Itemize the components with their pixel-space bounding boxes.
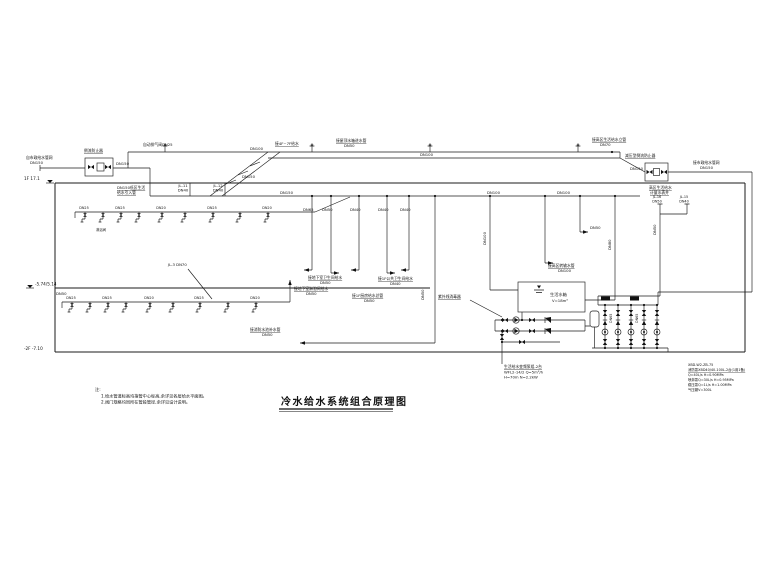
faucet-branch xyxy=(169,302,175,312)
branch-dn: DN50 xyxy=(56,291,67,296)
city-main-dn: DN150 xyxy=(700,165,714,170)
uv-sterilizer-label: 紫外线消毒器 xyxy=(438,294,461,299)
tank-volume: V=18m³ xyxy=(552,298,568,303)
level-mark-1f xyxy=(46,180,54,183)
riser-tag-dn: DN40 xyxy=(178,188,189,193)
valve-icon xyxy=(661,170,667,174)
pump-tag-badge xyxy=(601,297,610,301)
faucet-branch xyxy=(104,302,110,312)
low-zone-inlet: 自市政给水管网 DN150 倒流防止器 DN150 DN150低区生活 给水引入… xyxy=(26,148,150,196)
riser-dn: DN40 xyxy=(378,207,389,212)
backflow-preventer-label: 倒流防止器 xyxy=(84,148,103,153)
valve-icon xyxy=(529,318,535,322)
pump-column xyxy=(615,304,621,349)
branch-row-1f: DN25 DN25 DN20 DN25 DN20 淋浴间 xyxy=(75,197,350,232)
flow-arrow xyxy=(351,268,356,271)
branch-dn: DN25 xyxy=(194,296,203,300)
inlet-source-dn: DN150 xyxy=(30,160,44,165)
roof-tank-dn: DN50 xyxy=(344,143,355,148)
riser-dn: DN40 xyxy=(350,207,361,212)
central-risers: DN65 DN50 DN40 DN40 DN40 DN50 DN100 DN80… xyxy=(250,195,616,345)
riser-dn: DN65 xyxy=(303,207,314,212)
faucet-branch xyxy=(81,212,87,222)
flow-arrow xyxy=(304,268,309,271)
fire-spec-line: 消防泵XBD40/40-100L-2台(1用1备) xyxy=(688,367,746,372)
fire-spec-line: XBD-W2-ZB-75 xyxy=(688,363,713,367)
flow-arrow xyxy=(288,280,291,285)
branch-dn: DN20 xyxy=(156,206,165,210)
branch-dn: DN25 xyxy=(66,296,75,300)
high-zone-inlet: 减压型倒流防止器 DN150 接市政给水管网 DN150 高区生活给水 计量水表… xyxy=(625,153,752,305)
flow-arrow xyxy=(401,268,406,271)
valve-icon xyxy=(502,329,508,333)
faucet-branch xyxy=(135,212,141,222)
faucet-branch xyxy=(146,302,152,312)
note-line: 1.给水管道标高均指管中心标高,余详见各层给水平面图。 xyxy=(101,393,207,400)
branch-dn: DN25 xyxy=(207,206,216,210)
branch-dn: DN20 xyxy=(144,296,153,300)
branch-dn: DN20 xyxy=(250,296,259,300)
valve-icon xyxy=(88,165,94,169)
riser-dn: DN40 xyxy=(400,207,411,212)
pump-spec-line: 生活给水变频泵组-2台 xyxy=(504,364,542,369)
valve-icon xyxy=(519,340,525,344)
branch-dn: DN25 xyxy=(102,296,111,300)
level-label-b2: -2F -7.10 xyxy=(24,346,43,351)
pump-column xyxy=(602,304,608,349)
drawing-title: 冷水给水系统组合原理图 xyxy=(279,395,408,412)
level-label-1f: 1F 17.1 xyxy=(24,176,40,181)
water-level-icon xyxy=(537,286,541,289)
top-distribution: 自动排气阀DN25 JL-11 DN40 JL-12 DN40 DN100 接4… xyxy=(128,137,645,196)
riser-tag: JL-16 xyxy=(652,195,661,199)
fire-spec-line: 气压罐V=300L xyxy=(688,387,712,392)
valve-icon xyxy=(529,329,535,333)
ramp-dn-label: DN150 xyxy=(242,174,256,179)
valve-icon xyxy=(647,170,653,174)
air-vent-icon xyxy=(576,144,581,152)
connection-dn: DN50 xyxy=(262,332,273,337)
pipe-dn-label: DN100 xyxy=(420,152,434,157)
air-vent-icon xyxy=(428,144,433,152)
pipe-dn-label: DN100 xyxy=(250,146,264,151)
water-meter-icon xyxy=(97,163,104,171)
faucet-branch xyxy=(224,302,230,312)
water-tank xyxy=(518,282,585,312)
title-text: 冷水给水系统组合原理图 xyxy=(281,395,408,408)
faucet-branch xyxy=(181,212,187,222)
valve-icon xyxy=(105,165,111,169)
riser-dn-vertical: DN50 xyxy=(652,224,657,235)
tank-name: 生活水箱 xyxy=(550,291,567,298)
riser-dn: DN50 xyxy=(322,207,333,212)
connection-dn: DN40 xyxy=(390,281,401,286)
riser-tag-dn: DN40 xyxy=(679,200,688,204)
faucet-branch xyxy=(236,212,242,222)
header-dn-label: DN150 xyxy=(280,190,294,195)
header-dn-label: DN100 xyxy=(557,190,571,195)
riser-dn-vertical: DN80 xyxy=(607,239,612,250)
flow-arrow xyxy=(300,341,305,344)
manifold-dn: DN65 xyxy=(609,314,613,323)
pump-column xyxy=(654,304,660,349)
inlet-note-line2: 给水引入管 xyxy=(117,190,136,195)
drawing-sheet: 1F 17.1 -5.74/5.14 -2F -7.10 自市政给水管网 DN1… xyxy=(0,0,760,570)
faucet-branch xyxy=(86,302,92,312)
branch-dn: DN25 xyxy=(115,206,124,210)
room-label: 淋浴间 xyxy=(96,227,107,232)
pr-backflow-label: 减压型倒流防止器 xyxy=(625,153,656,158)
air-vent-label: 自动排气阀DN25 xyxy=(143,142,173,147)
pump-column xyxy=(641,304,647,349)
manifold-dn: DN65 xyxy=(635,314,639,323)
flow-arrow xyxy=(390,271,395,274)
header-dn-label: DN100 xyxy=(487,190,501,195)
pump-column xyxy=(628,304,634,349)
riser-tag: JL-15 xyxy=(679,195,688,199)
faucet-branch xyxy=(117,212,123,222)
faucet-branch xyxy=(122,302,128,312)
valve-icon xyxy=(500,334,504,340)
faucet-branch xyxy=(252,302,258,312)
valve-icon xyxy=(502,318,508,322)
note-line: 2.阀门规格均同所在管段管径,余详见设计说明。 xyxy=(101,399,190,406)
fire-spec-line: 喷淋泵Q=30L/s H=0.95MPa xyxy=(688,377,734,382)
building-frame: 1F 17.1 -5.74/5.14 -2F -7.10 xyxy=(24,176,745,352)
faucet-branch xyxy=(68,302,74,312)
riser-dn-vertical: DN100 xyxy=(482,231,487,245)
branch-row-basement: DN25 DN25 DN20 DN25 DN20 DN50 JL-3 DN70 … xyxy=(56,262,328,312)
faucet-branch xyxy=(209,212,215,222)
connection-dn: DN50 xyxy=(320,280,331,285)
level-label-b1: -5.74/5.14 xyxy=(35,282,57,287)
riser-tag-dn: DN40 xyxy=(213,188,224,193)
pump-spec-line: H=70m N=2.2kW xyxy=(504,375,538,380)
fire-pump-manifold: DN65 DN65 XBD-W2-ZB-75 消防泵XBD40/40-100L-… xyxy=(592,297,746,393)
high-zone-riser-dn: DN70 xyxy=(600,142,611,147)
riser-tag-dn: DN50 xyxy=(652,200,661,204)
check-valve-icon xyxy=(545,317,551,334)
branch-dn: DN20 xyxy=(262,206,271,210)
level-mark-b1 xyxy=(26,285,34,288)
riser-dn-vertical: DN50 xyxy=(420,289,425,300)
branch-dn: DN25 xyxy=(79,206,88,210)
water-meter-icon xyxy=(654,169,660,176)
diagram-canvas: 1F 17.1 -5.74/5.14 -2F -7.10 自市政给水管网 DN1… xyxy=(0,0,760,570)
connection-dn: DN50 xyxy=(306,291,317,296)
pipe-dn-label: DN150 xyxy=(630,166,644,171)
faucet-branch xyxy=(158,212,164,222)
faucet-branch xyxy=(264,212,270,222)
junction-dot xyxy=(611,151,613,153)
notes-heading: 注: xyxy=(95,386,101,393)
air-vent-icon xyxy=(310,144,315,152)
fire-spec-line: Q=40L/s H=0.90MPa xyxy=(688,373,724,377)
riser-tag: JL-3 DN70 xyxy=(167,262,187,267)
connection-dn: DN50 xyxy=(364,298,375,303)
branch-dn: DN50 xyxy=(590,225,601,230)
flow-arrow xyxy=(583,230,588,233)
connection-dn: DN100 xyxy=(558,268,572,273)
pump-tag-badge xyxy=(630,297,639,301)
general-notes: 注: 1.给水管道标高均指管中心标高,余详见各层给水平面图。 2.阀门规格均同所… xyxy=(95,386,207,406)
faucet-branch xyxy=(196,302,202,312)
pressure-vessel xyxy=(590,311,599,327)
faucet-branch xyxy=(99,212,105,222)
fire-spec-line: 稳压泵Q=1L/s H=1.00MPa xyxy=(688,382,732,387)
inlet-dn-label: DN150 xyxy=(116,161,130,166)
tank-and-pumps: 生活水箱 V=18m³ 紫外线消毒器 生活给水变频泵组-2台 WFL2-14/2… xyxy=(438,282,599,380)
branch-to-floors-label: 接4F~7F给水 xyxy=(275,141,299,146)
